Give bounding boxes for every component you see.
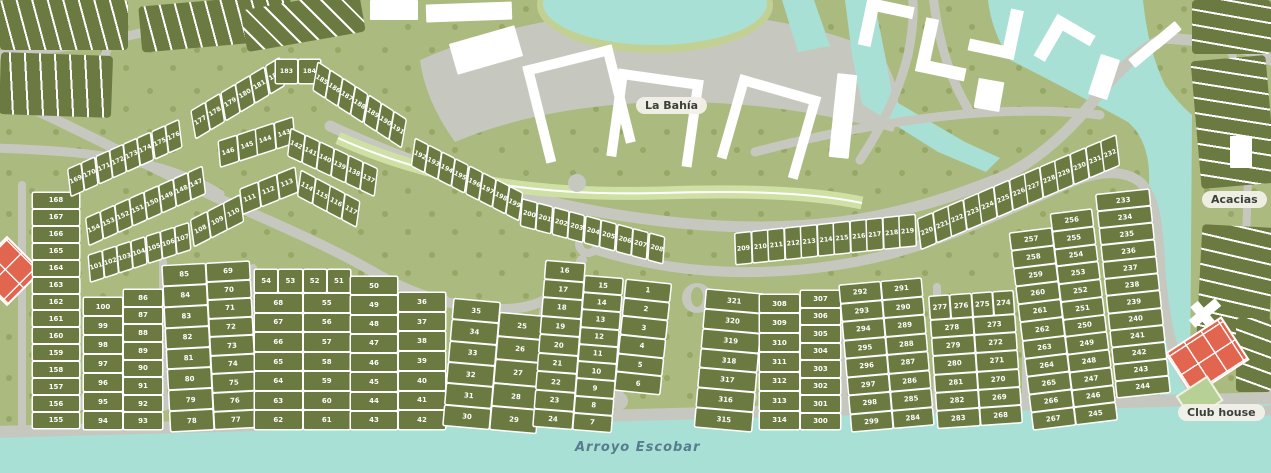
lot-100[interactable]: 100 <box>84 298 122 315</box>
lot-292[interactable]: 292 <box>840 282 881 302</box>
lot-86[interactable]: 86 <box>124 290 162 306</box>
lot-166[interactable]: 166 <box>33 227 79 242</box>
lot-318[interactable]: 318 <box>700 349 757 372</box>
lot-80[interactable]: 80 <box>168 368 211 389</box>
lot-142[interactable]: 142 <box>288 129 304 161</box>
lot-53[interactable]: 53 <box>279 270 301 292</box>
lot-21[interactable]: 21 <box>538 354 577 373</box>
lot-269[interactable]: 269 <box>979 388 1021 407</box>
lot-298[interactable]: 298 <box>849 393 890 413</box>
lot-255[interactable]: 255 <box>1053 227 1095 248</box>
lot-218[interactable]: 218 <box>884 217 900 249</box>
lot-84[interactable]: 84 <box>164 285 207 306</box>
lot-272[interactable]: 272 <box>975 333 1017 352</box>
lot-82[interactable]: 82 <box>166 327 209 348</box>
lot-276[interactable]: 276 <box>951 294 972 317</box>
lot-301[interactable]: 301 <box>801 396 840 412</box>
lot-214[interactable]: 214 <box>818 224 834 256</box>
lot-96[interactable]: 96 <box>84 374 122 391</box>
lot-320[interactable]: 320 <box>704 310 761 333</box>
lot-68[interactable]: 68 <box>255 294 302 312</box>
building <box>370 0 418 20</box>
lot-251[interactable]: 251 <box>1061 298 1103 319</box>
lot-24[interactable]: 24 <box>534 409 573 428</box>
lot-227[interactable]: 227 <box>1025 168 1042 203</box>
lot-308[interactable]: 308 <box>760 295 799 312</box>
lot-81[interactable]: 81 <box>167 348 210 369</box>
lot-17[interactable]: 17 <box>544 280 583 299</box>
lot-170[interactable]: 170 <box>82 158 97 189</box>
lot-219[interactable]: 219 <box>900 215 916 247</box>
lot-92[interactable]: 92 <box>124 396 162 412</box>
lot-29[interactable]: 29 <box>491 407 538 432</box>
lot-1[interactable]: 1 <box>625 280 671 301</box>
lot-284[interactable]: 284 <box>892 408 933 428</box>
lot-157[interactable]: 157 <box>33 379 79 394</box>
lot-162[interactable]: 162 <box>33 295 79 310</box>
lot-4[interactable]: 4 <box>619 336 665 357</box>
lot-305[interactable]: 305 <box>801 326 840 342</box>
lot-291[interactable]: 291 <box>881 279 922 299</box>
lot-183[interactable]: 183 <box>276 60 297 83</box>
lot-103[interactable]: 103 <box>118 242 133 272</box>
lot-60[interactable]: 60 <box>304 392 351 410</box>
lot-248[interactable]: 248 <box>1068 351 1110 372</box>
lot-164[interactable]: 164 <box>33 261 79 276</box>
lot-165[interactable]: 165 <box>33 244 79 259</box>
lot-161[interactable]: 161 <box>33 311 79 326</box>
lot-172[interactable]: 172 <box>110 146 125 177</box>
lot-56[interactable]: 56 <box>304 314 351 332</box>
lot-51[interactable]: 51 <box>328 270 350 292</box>
lot-93[interactable]: 93 <box>124 413 162 429</box>
lot-212[interactable]: 212 <box>785 227 801 259</box>
lot-169[interactable]: 169 <box>68 164 83 195</box>
lot-9[interactable]: 9 <box>576 379 615 397</box>
lot-102[interactable]: 102 <box>103 247 118 277</box>
lot-14[interactable]: 14 <box>582 293 621 311</box>
lot-15[interactable]: 15 <box>584 276 623 294</box>
block-268-283: 277276275274 278279280281282283 27327227… <box>930 291 1022 427</box>
lot-144[interactable]: 144 <box>256 124 275 154</box>
lot-22[interactable]: 22 <box>537 372 576 391</box>
lot-280[interactable]: 280 <box>934 354 976 373</box>
lot-69[interactable]: 69 <box>207 262 250 281</box>
lot-286[interactable]: 286 <box>889 371 930 391</box>
lot-89[interactable]: 89 <box>124 343 162 359</box>
lot-104[interactable]: 104 <box>132 238 147 268</box>
lot-262[interactable]: 262 <box>1021 319 1063 340</box>
lot-197[interactable]: 197 <box>480 174 495 206</box>
lot-97[interactable]: 97 <box>84 355 122 372</box>
lot-173[interactable]: 173 <box>124 139 139 170</box>
lot-159[interactable]: 159 <box>33 345 79 360</box>
lot-8[interactable]: 8 <box>574 396 613 414</box>
block-51-68: 54535251 68676665646362 55565758596061 <box>255 270 350 429</box>
block-300-314: 308309310311312313314 307306305304303302… <box>760 291 840 429</box>
lot-299[interactable]: 299 <box>851 411 892 431</box>
lot-279[interactable]: 279 <box>932 336 974 355</box>
lot-63[interactable]: 63 <box>255 392 302 410</box>
lot-297[interactable]: 297 <box>848 375 889 395</box>
block-36-50: 5049484746454443 36373839404142 <box>351 277 445 429</box>
lot-42[interactable]: 42 <box>399 411 445 429</box>
masterplan-map: 1681671661651641631621611601591581571561… <box>0 0 1271 473</box>
lot-20[interactable]: 20 <box>539 335 578 354</box>
lot-73[interactable]: 73 <box>211 336 254 355</box>
lot-90[interactable]: 90 <box>124 361 162 377</box>
lot-288[interactable]: 288 <box>886 334 927 354</box>
lot-27[interactable]: 27 <box>495 360 542 385</box>
lot-55[interactable]: 55 <box>304 294 351 312</box>
lot-50[interactable]: 50 <box>351 277 397 294</box>
lot-231[interactable]: 231 <box>1086 142 1103 177</box>
building <box>967 1 1027 62</box>
building <box>974 78 1005 112</box>
building <box>1230 136 1252 168</box>
lot-167[interactable]: 167 <box>33 210 79 225</box>
lot-30[interactable]: 30 <box>444 405 491 428</box>
lot-83[interactable]: 83 <box>165 306 208 327</box>
lot-203[interactable]: 203 <box>569 213 585 242</box>
lot-274[interactable]: 274 <box>993 291 1014 314</box>
lot-200[interactable]: 200 <box>521 200 537 229</box>
lot-225[interactable]: 225 <box>995 181 1012 216</box>
lot-313[interactable]: 313 <box>760 392 799 409</box>
lot-295[interactable]: 295 <box>845 338 886 358</box>
lot-25[interactable]: 25 <box>499 313 546 338</box>
lot-264[interactable]: 264 <box>1026 355 1068 376</box>
lot-222[interactable]: 222 <box>949 201 966 236</box>
lot-174[interactable]: 174 <box>138 133 153 164</box>
block-155-168: 1681671661651641631621611601591581571561… <box>33 193 79 428</box>
lot-62[interactable]: 62 <box>255 411 302 429</box>
lot-317[interactable]: 317 <box>699 369 756 392</box>
lot-221[interactable]: 221 <box>934 207 951 242</box>
lot-247[interactable]: 247 <box>1070 368 1112 389</box>
acacias-lots <box>1191 55 1271 189</box>
lot-156[interactable]: 156 <box>33 396 79 411</box>
lot-79[interactable]: 79 <box>169 389 212 410</box>
lot-44[interactable]: 44 <box>351 393 397 410</box>
lot-94[interactable]: 94 <box>84 412 122 429</box>
lot-106[interactable]: 106 <box>161 228 176 258</box>
lot-76[interactable]: 76 <box>213 392 256 411</box>
lot-321[interactable]: 321 <box>706 290 763 313</box>
lot-296[interactable]: 296 <box>846 356 887 376</box>
lot-49[interactable]: 49 <box>351 296 397 313</box>
lot-78[interactable]: 78 <box>170 410 213 431</box>
lot-11[interactable]: 11 <box>578 345 617 363</box>
lot-54[interactable]: 54 <box>255 270 277 292</box>
lot-5[interactable]: 5 <box>617 354 663 375</box>
lot-59[interactable]: 59 <box>304 372 351 390</box>
lot-149[interactable]: 149 <box>159 180 175 212</box>
lot-230[interactable]: 230 <box>1071 149 1088 184</box>
lot-46[interactable]: 46 <box>351 354 397 371</box>
lot-87[interactable]: 87 <box>124 308 162 324</box>
lot-268[interactable]: 268 <box>980 406 1022 425</box>
lot-171[interactable]: 171 <box>96 152 111 183</box>
lot-256[interactable]: 256 <box>1051 210 1093 231</box>
lot-304[interactable]: 304 <box>801 344 840 360</box>
lot-293[interactable]: 293 <box>841 301 882 321</box>
lot-226[interactable]: 226 <box>1010 175 1027 210</box>
lot-71[interactable]: 71 <box>209 299 252 318</box>
lot-229[interactable]: 229 <box>1056 155 1073 190</box>
lot-210[interactable]: 210 <box>752 231 768 263</box>
lot-34[interactable]: 34 <box>451 320 498 343</box>
lot-224[interactable]: 224 <box>979 188 996 223</box>
lot-208[interactable]: 208 <box>648 234 664 263</box>
lot-271[interactable]: 271 <box>976 351 1018 370</box>
lot-217[interactable]: 217 <box>867 219 883 251</box>
lot-64[interactable]: 64 <box>255 372 302 390</box>
lot-206[interactable]: 206 <box>616 225 632 254</box>
lot-88[interactable]: 88 <box>124 325 162 341</box>
lot-47[interactable]: 47 <box>351 335 397 352</box>
lot-38[interactable]: 38 <box>399 332 445 350</box>
lot-150[interactable]: 150 <box>145 187 161 219</box>
lot-307[interactable]: 307 <box>801 291 840 307</box>
lot-158[interactable]: 158 <box>33 362 79 377</box>
lot-66[interactable]: 66 <box>255 333 302 351</box>
lot-281[interactable]: 281 <box>935 373 977 392</box>
lot-32[interactable]: 32 <box>447 363 494 386</box>
lot-61[interactable]: 61 <box>304 411 351 429</box>
lot-91[interactable]: 91 <box>124 378 162 394</box>
club-house-label: Club house <box>1178 404 1265 421</box>
block-284-299: 292293294295296297298299 291290289288287… <box>840 279 933 432</box>
lot-18[interactable]: 18 <box>542 298 581 317</box>
lot-207[interactable]: 207 <box>632 230 648 259</box>
block-69-85: 8584838281807978 697071727374757677 <box>163 262 258 431</box>
lot-152[interactable]: 152 <box>116 200 132 232</box>
lot-265[interactable]: 265 <box>1028 372 1070 393</box>
unnumbered-lots <box>0 0 128 50</box>
lot-31[interactable]: 31 <box>446 384 493 407</box>
lot-39[interactable]: 39 <box>399 352 445 370</box>
lot-290[interactable]: 290 <box>883 297 924 317</box>
lot-195[interactable]: 195 <box>453 160 468 192</box>
lot-77[interactable]: 77 <box>214 410 257 429</box>
lot-33[interactable]: 33 <box>449 342 496 365</box>
lot-70[interactable]: 70 <box>208 280 251 299</box>
lot-52[interactable]: 52 <box>304 270 326 292</box>
lot-12[interactable]: 12 <box>580 328 619 346</box>
lot-289[interactable]: 289 <box>884 316 925 336</box>
lot-57[interactable]: 57 <box>304 333 351 351</box>
lot-155[interactable]: 155 <box>33 413 79 428</box>
lot-45[interactable]: 45 <box>351 373 397 390</box>
lot-41[interactable]: 41 <box>399 392 445 410</box>
lot-101[interactable]: 101 <box>89 252 104 282</box>
lot-294[interactable]: 294 <box>843 319 884 339</box>
lot-314[interactable]: 314 <box>760 412 799 429</box>
lot-107[interactable]: 107 <box>175 224 190 254</box>
lot-311[interactable]: 311 <box>760 353 799 370</box>
building <box>426 2 513 23</box>
lot-151[interactable]: 151 <box>130 193 146 225</box>
lot-275[interactable]: 275 <box>972 293 993 316</box>
block-315-321: 321320319318317316315 <box>695 290 763 431</box>
lot-215[interactable]: 215 <box>834 222 850 254</box>
lot-252[interactable]: 252 <box>1059 280 1101 301</box>
lot-13[interactable]: 13 <box>581 311 620 329</box>
lot-146[interactable]: 146 <box>219 136 238 166</box>
lot-138[interactable]: 138 <box>346 157 362 189</box>
lot-216[interactable]: 216 <box>851 220 867 252</box>
lot-228[interactable]: 228 <box>1041 162 1058 197</box>
unnumbered-lots <box>0 52 113 118</box>
lot-148[interactable]: 148 <box>174 174 190 206</box>
lot-65[interactable]: 65 <box>255 353 302 371</box>
lot-310[interactable]: 310 <box>760 334 799 351</box>
lot-220[interactable]: 220 <box>918 214 935 249</box>
lot-273[interactable]: 273 <box>974 315 1016 334</box>
lot-95[interactable]: 95 <box>84 393 122 410</box>
lot-139[interactable]: 139 <box>332 150 348 182</box>
lot-28[interactable]: 28 <box>493 384 540 409</box>
lot-300[interactable]: 300 <box>801 414 840 430</box>
lot-141[interactable]: 141 <box>303 136 319 168</box>
lot-72[interactable]: 72 <box>210 317 253 336</box>
lot-7[interactable]: 7 <box>573 414 612 432</box>
lot-36[interactable]: 36 <box>399 293 445 311</box>
lot-209[interactable]: 209 <box>735 232 751 264</box>
lot-277[interactable]: 277 <box>930 296 951 319</box>
lot-74[interactable]: 74 <box>212 355 255 374</box>
lot-19[interactable]: 19 <box>541 317 580 336</box>
lot-205[interactable]: 205 <box>600 221 616 250</box>
lot-153[interactable]: 153 <box>101 206 117 238</box>
residential-building <box>606 68 703 167</box>
lot-263[interactable]: 263 <box>1023 337 1065 358</box>
lot-48[interactable]: 48 <box>351 316 397 333</box>
lot-223[interactable]: 223 <box>964 194 981 229</box>
lot-202[interactable]: 202 <box>553 208 569 237</box>
lot-270[interactable]: 270 <box>977 370 1019 389</box>
arroyo-escobar-label: Arroyo Escobar <box>575 440 701 455</box>
lot-85[interactable]: 85 <box>163 264 206 285</box>
lot-26[interactable]: 26 <box>497 337 544 362</box>
lot-163[interactable]: 163 <box>33 278 79 293</box>
lot-198[interactable]: 198 <box>493 181 508 213</box>
lot-23[interactable]: 23 <box>535 391 574 410</box>
lot-75[interactable]: 75 <box>213 373 256 392</box>
lot-302[interactable]: 302 <box>801 379 840 395</box>
lot-204[interactable]: 204 <box>585 217 601 246</box>
lot-303[interactable]: 303 <box>801 361 840 377</box>
lot-282[interactable]: 282 <box>936 391 978 410</box>
building <box>857 0 916 57</box>
lot-175[interactable]: 175 <box>152 127 167 158</box>
lot-145[interactable]: 145 <box>237 130 256 160</box>
lot-201[interactable]: 201 <box>537 204 553 233</box>
lot-196[interactable]: 196 <box>466 167 481 199</box>
lot-285[interactable]: 285 <box>891 389 932 409</box>
lot-283[interactable]: 283 <box>938 409 980 428</box>
block-7-24: 161718192021222324 151413121110987 <box>534 261 624 432</box>
lot-309[interactable]: 309 <box>760 314 799 331</box>
lot-213[interactable]: 213 <box>801 226 817 258</box>
lot-16[interactable]: 16 <box>545 261 584 280</box>
block-86-100: 100999897969594 8687888990919293 <box>84 290 162 429</box>
lot-154[interactable]: 154 <box>86 213 102 245</box>
lot-99[interactable]: 99 <box>84 317 122 334</box>
lot-10[interactable]: 10 <box>577 362 616 380</box>
lot-319[interactable]: 319 <box>702 329 759 352</box>
lot-3[interactable]: 3 <box>621 317 667 338</box>
acacias-lots <box>1192 0 1271 54</box>
lot-67[interactable]: 67 <box>255 314 302 332</box>
la-bahia-label: La Bahía <box>636 97 707 114</box>
lot-98[interactable]: 98 <box>84 336 122 353</box>
lot-140[interactable]: 140 <box>317 143 333 175</box>
lot-316[interactable]: 316 <box>697 389 754 412</box>
lot-37[interactable]: 37 <box>399 313 445 331</box>
lot-43[interactable]: 43 <box>351 412 397 429</box>
lot-2[interactable]: 2 <box>623 299 669 320</box>
lot-160[interactable]: 160 <box>33 328 79 343</box>
lot-312[interactable]: 312 <box>760 373 799 390</box>
lot-278[interactable]: 278 <box>931 318 973 337</box>
block-25-35: 353433323130 2526272829 <box>444 299 547 433</box>
lot-40[interactable]: 40 <box>399 372 445 390</box>
acacias-label: Acacias <box>1202 191 1267 208</box>
lot-306[interactable]: 306 <box>801 309 840 325</box>
lot-58[interactable]: 58 <box>304 353 351 371</box>
lot-105[interactable]: 105 <box>147 233 162 263</box>
lot-287[interactable]: 287 <box>888 352 929 372</box>
lot-211[interactable]: 211 <box>768 229 784 261</box>
